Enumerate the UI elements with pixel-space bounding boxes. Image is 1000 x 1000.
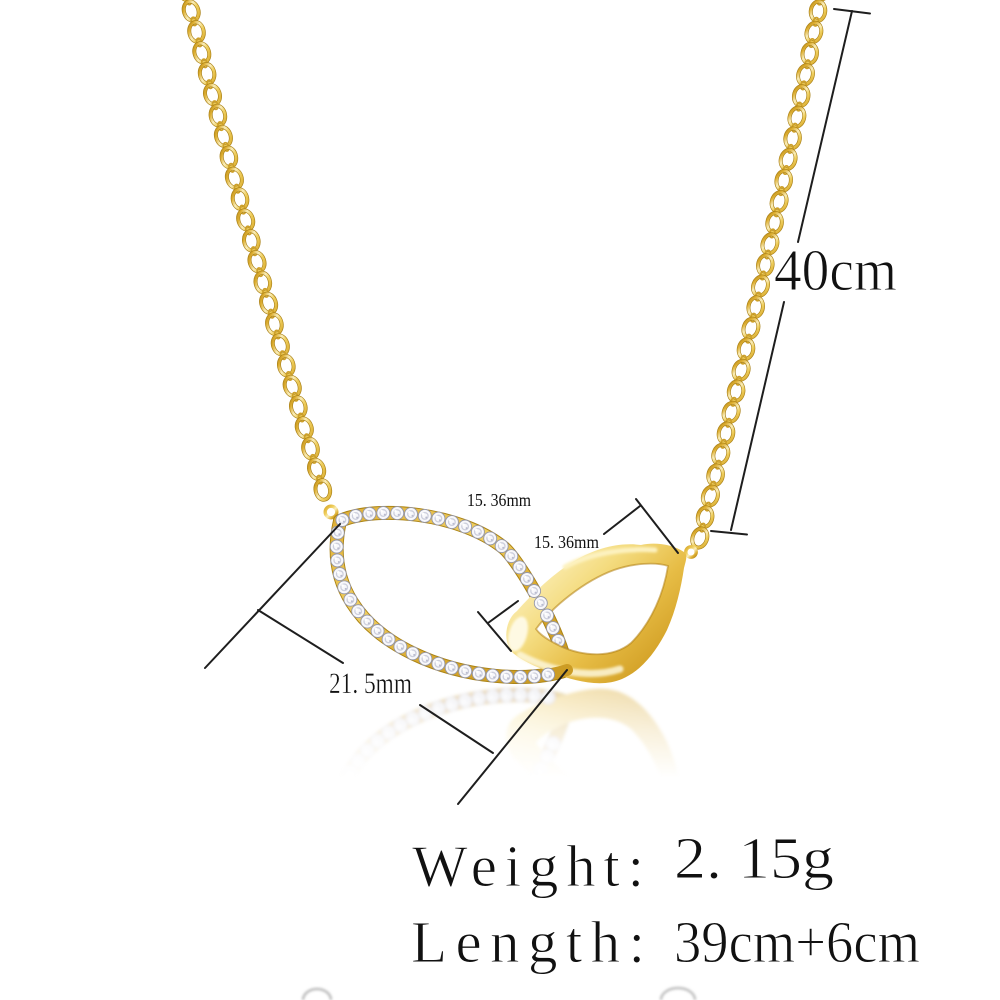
svg-text:2. 15g: 2. 15g xyxy=(674,825,834,891)
svg-text:15. 36mm: 15. 36mm xyxy=(534,532,599,552)
svg-text:40cm: 40cm xyxy=(774,237,897,303)
svg-text:39cm+6cm: 39cm+6cm xyxy=(674,909,920,975)
svg-text:Length:: Length: xyxy=(411,909,645,975)
svg-text:21. 5mm: 21. 5mm xyxy=(329,667,412,700)
svg-text:Weight:: Weight: xyxy=(412,833,644,899)
svg-text:15. 36mm: 15. 36mm xyxy=(467,490,531,510)
